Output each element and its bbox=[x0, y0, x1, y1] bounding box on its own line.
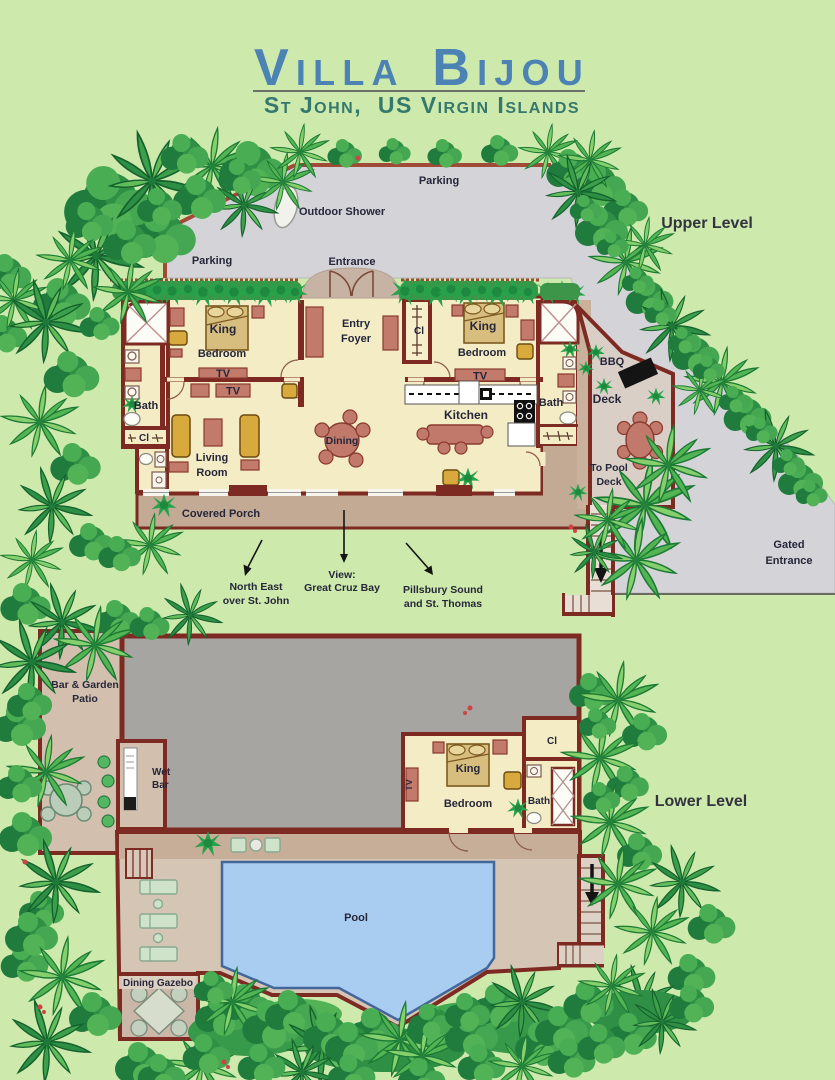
svg-text:Wet: Wet bbox=[152, 767, 171, 778]
svg-text:Outdoor Shower: Outdoor Shower bbox=[299, 206, 386, 218]
svg-text:Pillsbury Sound: Pillsbury Sound bbox=[403, 584, 483, 596]
svg-text:TV: TV bbox=[226, 386, 241, 398]
svg-text:King: King bbox=[470, 319, 497, 333]
svg-text:Villa Bijou: Villa Bijou bbox=[254, 39, 590, 97]
svg-text:Bath: Bath bbox=[134, 400, 159, 412]
svg-text:TV: TV bbox=[216, 368, 231, 380]
svg-text:Dining: Dining bbox=[326, 435, 359, 447]
svg-text:North East: North East bbox=[229, 581, 283, 593]
svg-text:Entrance: Entrance bbox=[765, 555, 812, 567]
svg-text:Parking: Parking bbox=[192, 255, 232, 267]
svg-text:Living: Living bbox=[196, 452, 228, 464]
svg-text:BBQ: BBQ bbox=[600, 356, 625, 368]
svg-text:To Pool: To Pool bbox=[590, 462, 628, 474]
svg-text:Pool: Pool bbox=[344, 912, 368, 924]
svg-text:Gated: Gated bbox=[773, 539, 804, 551]
svg-text:Upper Level: Upper Level bbox=[661, 215, 753, 232]
svg-text:St John, US Virgin Islands: St John, US Virgin Islands bbox=[264, 92, 580, 118]
svg-text:Covered Porch: Covered Porch bbox=[182, 508, 261, 520]
svg-text:Cl: Cl bbox=[547, 736, 557, 747]
svg-text:Deck: Deck bbox=[596, 476, 621, 488]
svg-text:Parking: Parking bbox=[419, 175, 459, 187]
svg-text:Entrance: Entrance bbox=[328, 256, 375, 268]
svg-text:Bedroom: Bedroom bbox=[444, 798, 493, 810]
svg-text:Bedroom: Bedroom bbox=[458, 347, 507, 359]
svg-text:Entry: Entry bbox=[342, 318, 371, 330]
svg-text:Bedroom: Bedroom bbox=[198, 348, 247, 360]
svg-text:Bar: Bar bbox=[152, 780, 169, 791]
svg-text:Room: Room bbox=[196, 467, 227, 479]
svg-text:TV: TV bbox=[404, 779, 414, 791]
svg-text:Great Cruz Bay: Great Cruz Bay bbox=[304, 582, 380, 594]
svg-text:Lower Level: Lower Level bbox=[655, 793, 747, 810]
svg-text:King: King bbox=[210, 322, 237, 336]
svg-text:Dining Gazebo: Dining Gazebo bbox=[123, 978, 193, 989]
svg-text:Patio: Patio bbox=[72, 693, 98, 705]
svg-text:Cl: Cl bbox=[139, 433, 149, 444]
svg-text:Bath: Bath bbox=[528, 796, 550, 807]
svg-text:Bath: Bath bbox=[539, 397, 564, 409]
svg-text:King: King bbox=[456, 763, 480, 775]
svg-text:Cl: Cl bbox=[414, 326, 424, 337]
svg-text:and St. Thomas: and St. Thomas bbox=[404, 598, 482, 610]
svg-text:Deck: Deck bbox=[593, 392, 622, 406]
svg-text:Kitchen: Kitchen bbox=[444, 408, 488, 422]
svg-text:Bar & Garden: Bar & Garden bbox=[51, 679, 119, 691]
svg-text:over St. John: over St. John bbox=[223, 595, 290, 607]
svg-text:TV: TV bbox=[473, 371, 488, 383]
svg-text:View:: View: bbox=[328, 569, 355, 581]
svg-text:Foyer: Foyer bbox=[341, 333, 372, 345]
